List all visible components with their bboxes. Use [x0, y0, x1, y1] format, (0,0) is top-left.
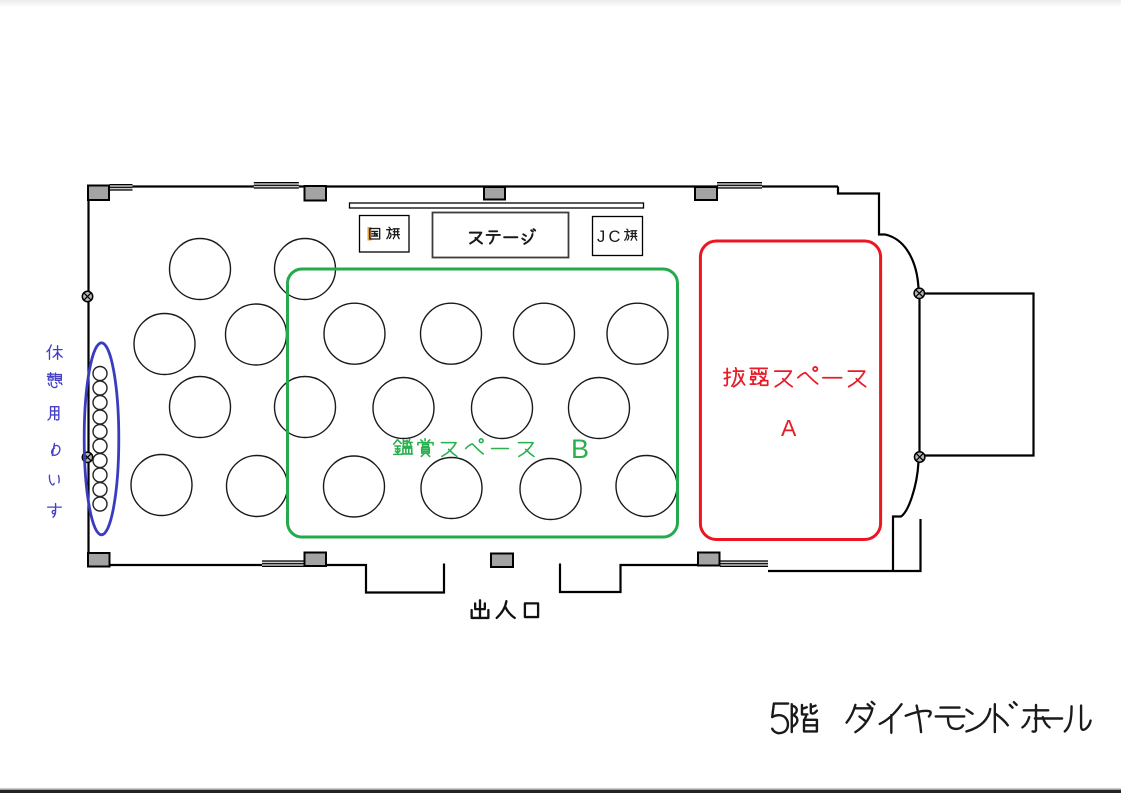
svg-text:J: J [597, 228, 605, 246]
svg-text:B: B [571, 434, 589, 464]
svg-text:C: C [609, 228, 621, 246]
svg-text:A: A [781, 415, 797, 441]
